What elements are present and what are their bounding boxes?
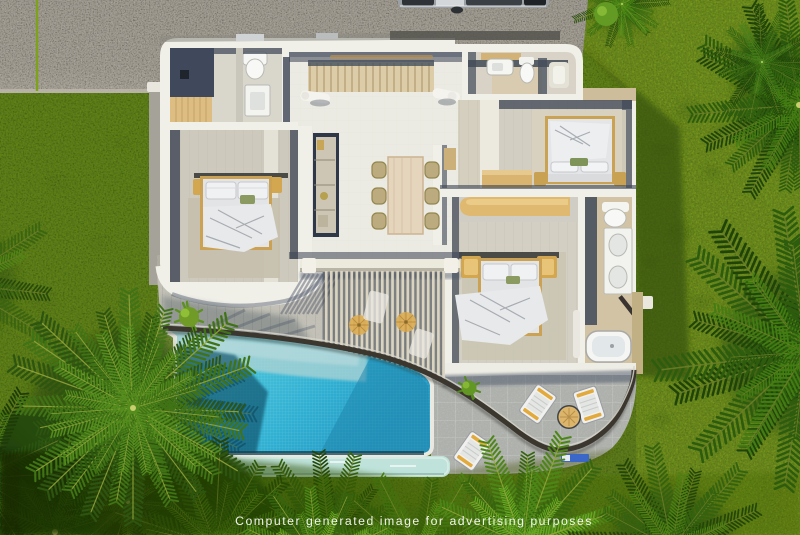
svg-text:Computer generated image for a: Computer generated image for advertising… bbox=[235, 514, 593, 528]
